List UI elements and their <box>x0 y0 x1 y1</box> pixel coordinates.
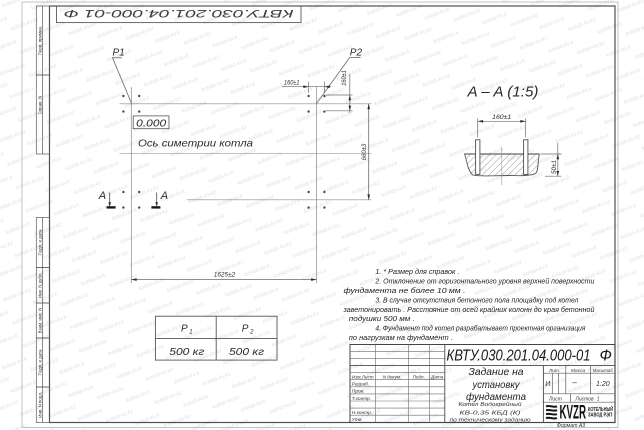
svg-text:160±1: 160±1 <box>341 70 348 86</box>
svg-text:N докум.: N докум. <box>383 374 402 379</box>
svg-text:A: A <box>98 190 106 202</box>
svg-text:500 кг: 500 кг <box>229 347 264 358</box>
svg-text:Котел Водогрейный: Котел Водогрейный <box>459 401 522 408</box>
svg-text:Справ. N: Справ. N <box>37 96 42 114</box>
svg-text:Ось симетрии котла: Ось симетрии котла <box>138 138 253 150</box>
svg-text:Разраб.: Разраб. <box>352 382 369 388</box>
svg-text:1625±2: 1625±2 <box>214 272 236 279</box>
svg-text:по техническому заданию: по техническому заданию <box>450 418 531 424</box>
svg-text:Лист: Лист <box>548 396 562 402</box>
svg-text:2. Отклонение от горизонтально: 2. Отклонение от горизонтального уровня … <box>374 277 594 286</box>
svg-text:1:20: 1:20 <box>596 381 610 388</box>
svg-text:160±1: 160±1 <box>284 80 300 87</box>
svg-text:50±1: 50±1 <box>551 160 558 174</box>
svg-text:по нагрузкам на фундамент .: по нагрузкам на фундамент . <box>349 333 453 342</box>
svg-text:P: P <box>242 323 249 334</box>
svg-text:Инв. N дубл.: Инв. N дубл. <box>37 272 42 298</box>
svg-text:Дата: Дата <box>430 374 444 379</box>
svg-text:Т.контр.: Т.контр. <box>352 396 371 402</box>
svg-text:Подп.: Подп. <box>413 374 425 379</box>
svg-text:ЗАВОД РЭП: ЗАВОД РЭП <box>588 413 612 419</box>
svg-text:1: 1 <box>189 329 192 335</box>
svg-text:Лит.: Лит. <box>548 368 560 374</box>
svg-text:Подп. и дата: Подп. и дата <box>37 349 42 375</box>
svg-text:Пров.: Пров. <box>352 389 365 395</box>
svg-text:КВТУ.030.201.04.000-01 Ф: КВТУ.030.201.04.000-01 Ф <box>63 7 293 19</box>
svg-text:Взам. инв. N: Взам. инв. N <box>37 308 42 334</box>
svg-text:Задание на: Задание на <box>469 366 524 378</box>
svg-text:P2: P2 <box>350 48 363 59</box>
svg-text:500 кг: 500 кг <box>169 347 204 358</box>
svg-text:КВ-0,35 КБД (К): КВ-0,35 КБД (К) <box>460 410 521 416</box>
svg-text:P1: P1 <box>113 47 125 58</box>
svg-text:1. * Размер для справок .: 1. * Размер для справок . <box>375 267 459 276</box>
svg-text:Масса: Масса <box>571 368 586 374</box>
svg-text:Утв.: Утв. <box>352 417 363 423</box>
svg-text:Листов: Листов <box>574 396 594 402</box>
svg-text:160±1: 160±1 <box>492 114 511 121</box>
svg-text:заветонировать . Расстояние от: заветонировать . Расстояние от осей край… <box>343 305 595 314</box>
svg-text:Ф: Ф <box>600 347 612 364</box>
svg-text:P: P <box>181 323 188 334</box>
svg-text:КВТУ.030.201.04.000-01: КВТУ.030.201.04.000-01 <box>447 347 591 364</box>
svg-text:1: 1 <box>597 396 600 402</box>
svg-text:A – A (1:5): A – A (1:5) <box>466 83 538 100</box>
svg-text:Изм.Лист: Изм.Лист <box>352 374 374 379</box>
svg-text:0.000: 0.000 <box>136 117 166 129</box>
svg-text:4. Фундамент под котел разраба: 4. Фундамент под котел разрабатывает про… <box>375 324 585 333</box>
svg-text:подушки 500 мм .: подушки 500 мм . <box>349 314 415 323</box>
svg-text:3. В случае отсутствия бетонно: 3. В случае отсутствия бетонного пола пл… <box>375 295 579 304</box>
svg-text:Формат А3: Формат А3 <box>557 423 585 429</box>
svg-text:660±3: 660±3 <box>361 143 368 160</box>
svg-text:Подп. и дата: Подп. и дата <box>37 229 42 255</box>
svg-text:фундамента не более 10 мм .: фундамента не более 10 мм . <box>344 286 466 295</box>
svg-text:установку: установку <box>472 379 521 391</box>
svg-text:KVZR: KVZR <box>560 403 587 424</box>
svg-text:Инв. N подл.: Инв. N подл. <box>37 392 42 418</box>
svg-text:2: 2 <box>249 329 254 335</box>
svg-text:–: – <box>572 378 577 387</box>
svg-text:Н.контр.: Н.контр. <box>352 410 372 416</box>
svg-text:Перв. примен.: Перв. примен. <box>37 26 42 55</box>
svg-text:A: A <box>160 190 168 202</box>
svg-text:Масштаб: Масштаб <box>593 368 613 374</box>
